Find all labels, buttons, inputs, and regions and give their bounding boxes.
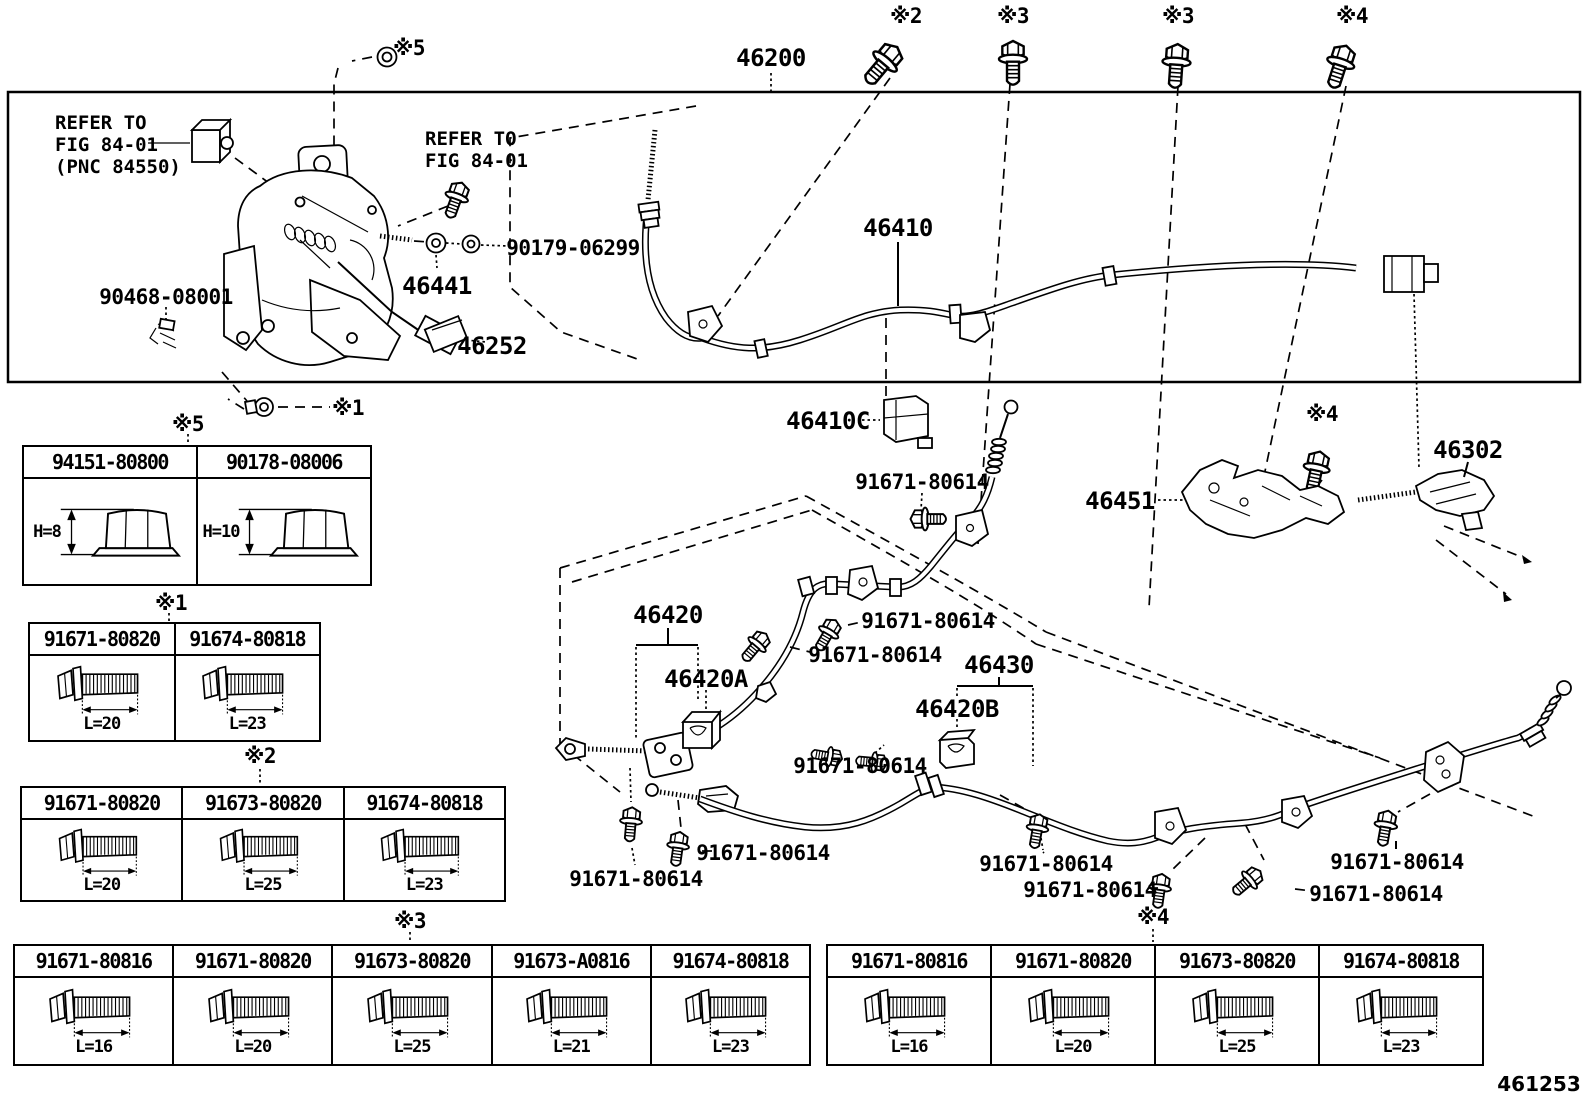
flange-nut-drawing: [57, 503, 187, 561]
table-column: 91674-80818 L=23: [343, 788, 504, 900]
bolt-note3-a: [999, 41, 1027, 85]
callout-91671-80614-7: 91671-80614: [979, 852, 1113, 876]
table-column: 91671-80820 L=20: [30, 624, 174, 740]
table-column: 91671-80820 L=20: [990, 946, 1154, 1064]
callout-91671-80614-8: 91671-80614: [1023, 878, 1157, 902]
dimension-label: L=20: [83, 875, 120, 895]
table-column: 94151-80800 H=8: [24, 447, 196, 584]
table-column: 91674-80818 L=23: [1318, 946, 1482, 1064]
table-column: 90178-08006 H=10: [196, 447, 370, 584]
bolt-drawing: [372, 825, 476, 881]
dimension-label: L=20: [234, 1037, 271, 1057]
bolt-drawing: [857, 985, 961, 1043]
refer-screw: [438, 179, 473, 222]
marker-note-3-b: ※3: [1162, 4, 1194, 28]
callout-46420a: 46420A: [664, 665, 748, 693]
callout-46451: 46451: [1085, 487, 1155, 515]
fastener-table-1: 91671-80820 L=20 91674-80818 L=23: [28, 622, 321, 742]
callout-91671-80614-9: 91671-80614: [1330, 850, 1464, 874]
fastener-table-5: 94151-80800 H=8 90178-08006 H=10: [22, 445, 372, 586]
dimension-label: L=21: [553, 1037, 590, 1057]
dimension-label: L=16: [891, 1037, 928, 1057]
callout-90468-08001: 90468-08001: [99, 285, 233, 309]
callout-46410c: 46410C: [786, 407, 870, 435]
part-number: 91674-80818: [652, 946, 809, 978]
cable-clamp-46410c: [884, 396, 932, 448]
bolt-note4-top: [1319, 41, 1359, 91]
callout-46441: 46441: [402, 272, 472, 300]
part-number: 91674-80818: [345, 788, 504, 820]
washer-parts: [427, 234, 509, 269]
table-column: 91674-80818 L=23: [174, 624, 320, 740]
dimension-label: L=23: [406, 875, 443, 895]
marker-table-3: ※3: [394, 909, 426, 933]
part-number: 91674-80818: [176, 624, 320, 656]
bolt-drawing: [678, 985, 782, 1043]
dimension-label: H=10: [203, 522, 240, 542]
callout-91671-80614-3: 91671-80614: [808, 643, 942, 667]
dimension-label: L=25: [394, 1037, 431, 1057]
part-number: 91674-80818: [1320, 946, 1482, 978]
callout-46410: 46410: [863, 214, 933, 242]
part-number: 91671-80820: [174, 946, 331, 978]
refer-note-1: REFER TO FIG 84-01 (PNC 84550): [55, 112, 181, 178]
rear-cable-rh-art: [646, 681, 1571, 844]
dimension-label: L=20: [83, 714, 120, 734]
bolt-drawing: [195, 662, 299, 720]
part-number: 91671-80816: [828, 946, 990, 978]
table-column: 91673-80820 L=25: [331, 946, 490, 1064]
callout-46430: 46430: [964, 651, 1034, 679]
callout-91671-80614-2: 91671-80614: [861, 609, 995, 633]
marker-table-5: ※5: [172, 412, 204, 436]
table-column: 91671-80820 L=20: [172, 946, 331, 1064]
callout-46302: 46302: [1433, 436, 1503, 464]
table-column: 91671-80816 L=16: [828, 946, 990, 1064]
bolt-note1: [245, 398, 273, 416]
fastener-table-4: 91671-80816 L=16 91671-80820 L=20 91673-…: [826, 944, 1484, 1066]
marker-note-4-mid: ※4: [1306, 402, 1338, 426]
dimension-label: L=25: [245, 875, 282, 895]
part-number: 91673-80820: [1156, 946, 1318, 978]
bolt-note3-b: [1161, 43, 1192, 89]
marker-note-4-top: ※4: [1336, 4, 1368, 28]
parts-diagram-page: REFER TO FIG 84-01 (PNC 84550) REFER TO …: [0, 0, 1592, 1099]
callout-91671-80614-10: 91671-80614: [1309, 882, 1443, 906]
bolt-drawing: [42, 985, 146, 1043]
dimension-label: L=20: [1055, 1037, 1092, 1057]
part-number: 91671-80820: [22, 788, 181, 820]
table-column: 91673-80820 L=25: [1154, 946, 1318, 1064]
part-number: 91671-80820: [992, 946, 1154, 978]
marker-note-1-top: ※1: [332, 396, 364, 420]
figure-number: 461253: [1497, 1072, 1581, 1096]
marker-note-2: ※2: [890, 4, 922, 28]
bolt-drawing: [519, 985, 623, 1043]
bolt-drawing: [201, 985, 305, 1043]
part-number: 94151-80800: [24, 447, 196, 479]
marker-table-2: ※2: [244, 744, 276, 768]
callout-91671-80614-4: 91671-80614: [793, 754, 927, 778]
callout-46200: 46200: [736, 44, 806, 72]
bolt-drawing: [211, 825, 315, 881]
table-column: 91671-80816 L=16: [15, 946, 172, 1064]
fastener-table-3: 91671-80816 L=16 91671-80820 L=20 91673-…: [13, 944, 811, 1066]
bolt-note2: [856, 38, 908, 92]
clip-part: [150, 307, 176, 348]
part-number: 91671-80816: [15, 946, 172, 978]
bolt-drawing: [1021, 985, 1125, 1043]
callout-91671-80614-1: 91671-80614: [855, 470, 989, 494]
table-column: 91673-80820 L=25: [181, 788, 342, 900]
callout-46252: 46252: [457, 332, 527, 360]
part-number: 90178-08006: [198, 447, 370, 479]
grommet-46420b: [940, 730, 974, 768]
bolt-drawing: [1349, 985, 1453, 1043]
marker-table-1: ※1: [155, 591, 187, 615]
dimension-label: L=25: [1219, 1037, 1256, 1057]
fastener-table-2: 91671-80820 L=20 91673-80820 L=25 91674-…: [20, 786, 506, 902]
dimension-label: L=16: [75, 1037, 112, 1057]
front-cable-art: [638, 130, 1438, 358]
dimension-label: L=23: [229, 714, 266, 734]
callout-46420: 46420: [633, 601, 703, 629]
flange-nut-drawing: [235, 503, 365, 561]
grommet-46420a: [683, 712, 720, 748]
part-number: 91673-A0816: [493, 946, 650, 978]
bolt-drawing: [50, 825, 154, 881]
bolt-drawing: [1185, 985, 1289, 1043]
bolt-drawing: [50, 662, 154, 720]
marker-note-5-top: ※5: [393, 36, 425, 60]
callout-91671-80614-6: 91671-80614: [696, 841, 830, 865]
dimension-label: L=23: [1383, 1037, 1420, 1057]
marker-note-3-a: ※3: [997, 4, 1029, 28]
bolt-drawing: [360, 985, 464, 1043]
part-number: 91673-80820: [183, 788, 342, 820]
cable-end-46302: [1358, 470, 1494, 530]
table-column: 91674-80818 L=23: [650, 946, 809, 1064]
part-number: 91673-80820: [333, 946, 490, 978]
callout-91671-80614-5: 91671-80614: [569, 867, 703, 891]
table-column: 91671-80820 L=20: [22, 788, 181, 900]
dimension-label: L=23: [712, 1037, 749, 1057]
table-column: 91673-A0816 L=21: [491, 946, 650, 1064]
callout-90179-06299: 90179-06299: [506, 236, 640, 260]
part-number: 91671-80820: [30, 624, 174, 656]
refer-note-2: REFER TO FIG 84-01: [425, 128, 528, 172]
marker-table-4: ※4: [1137, 905, 1169, 929]
callout-46420b: 46420B: [915, 695, 999, 723]
